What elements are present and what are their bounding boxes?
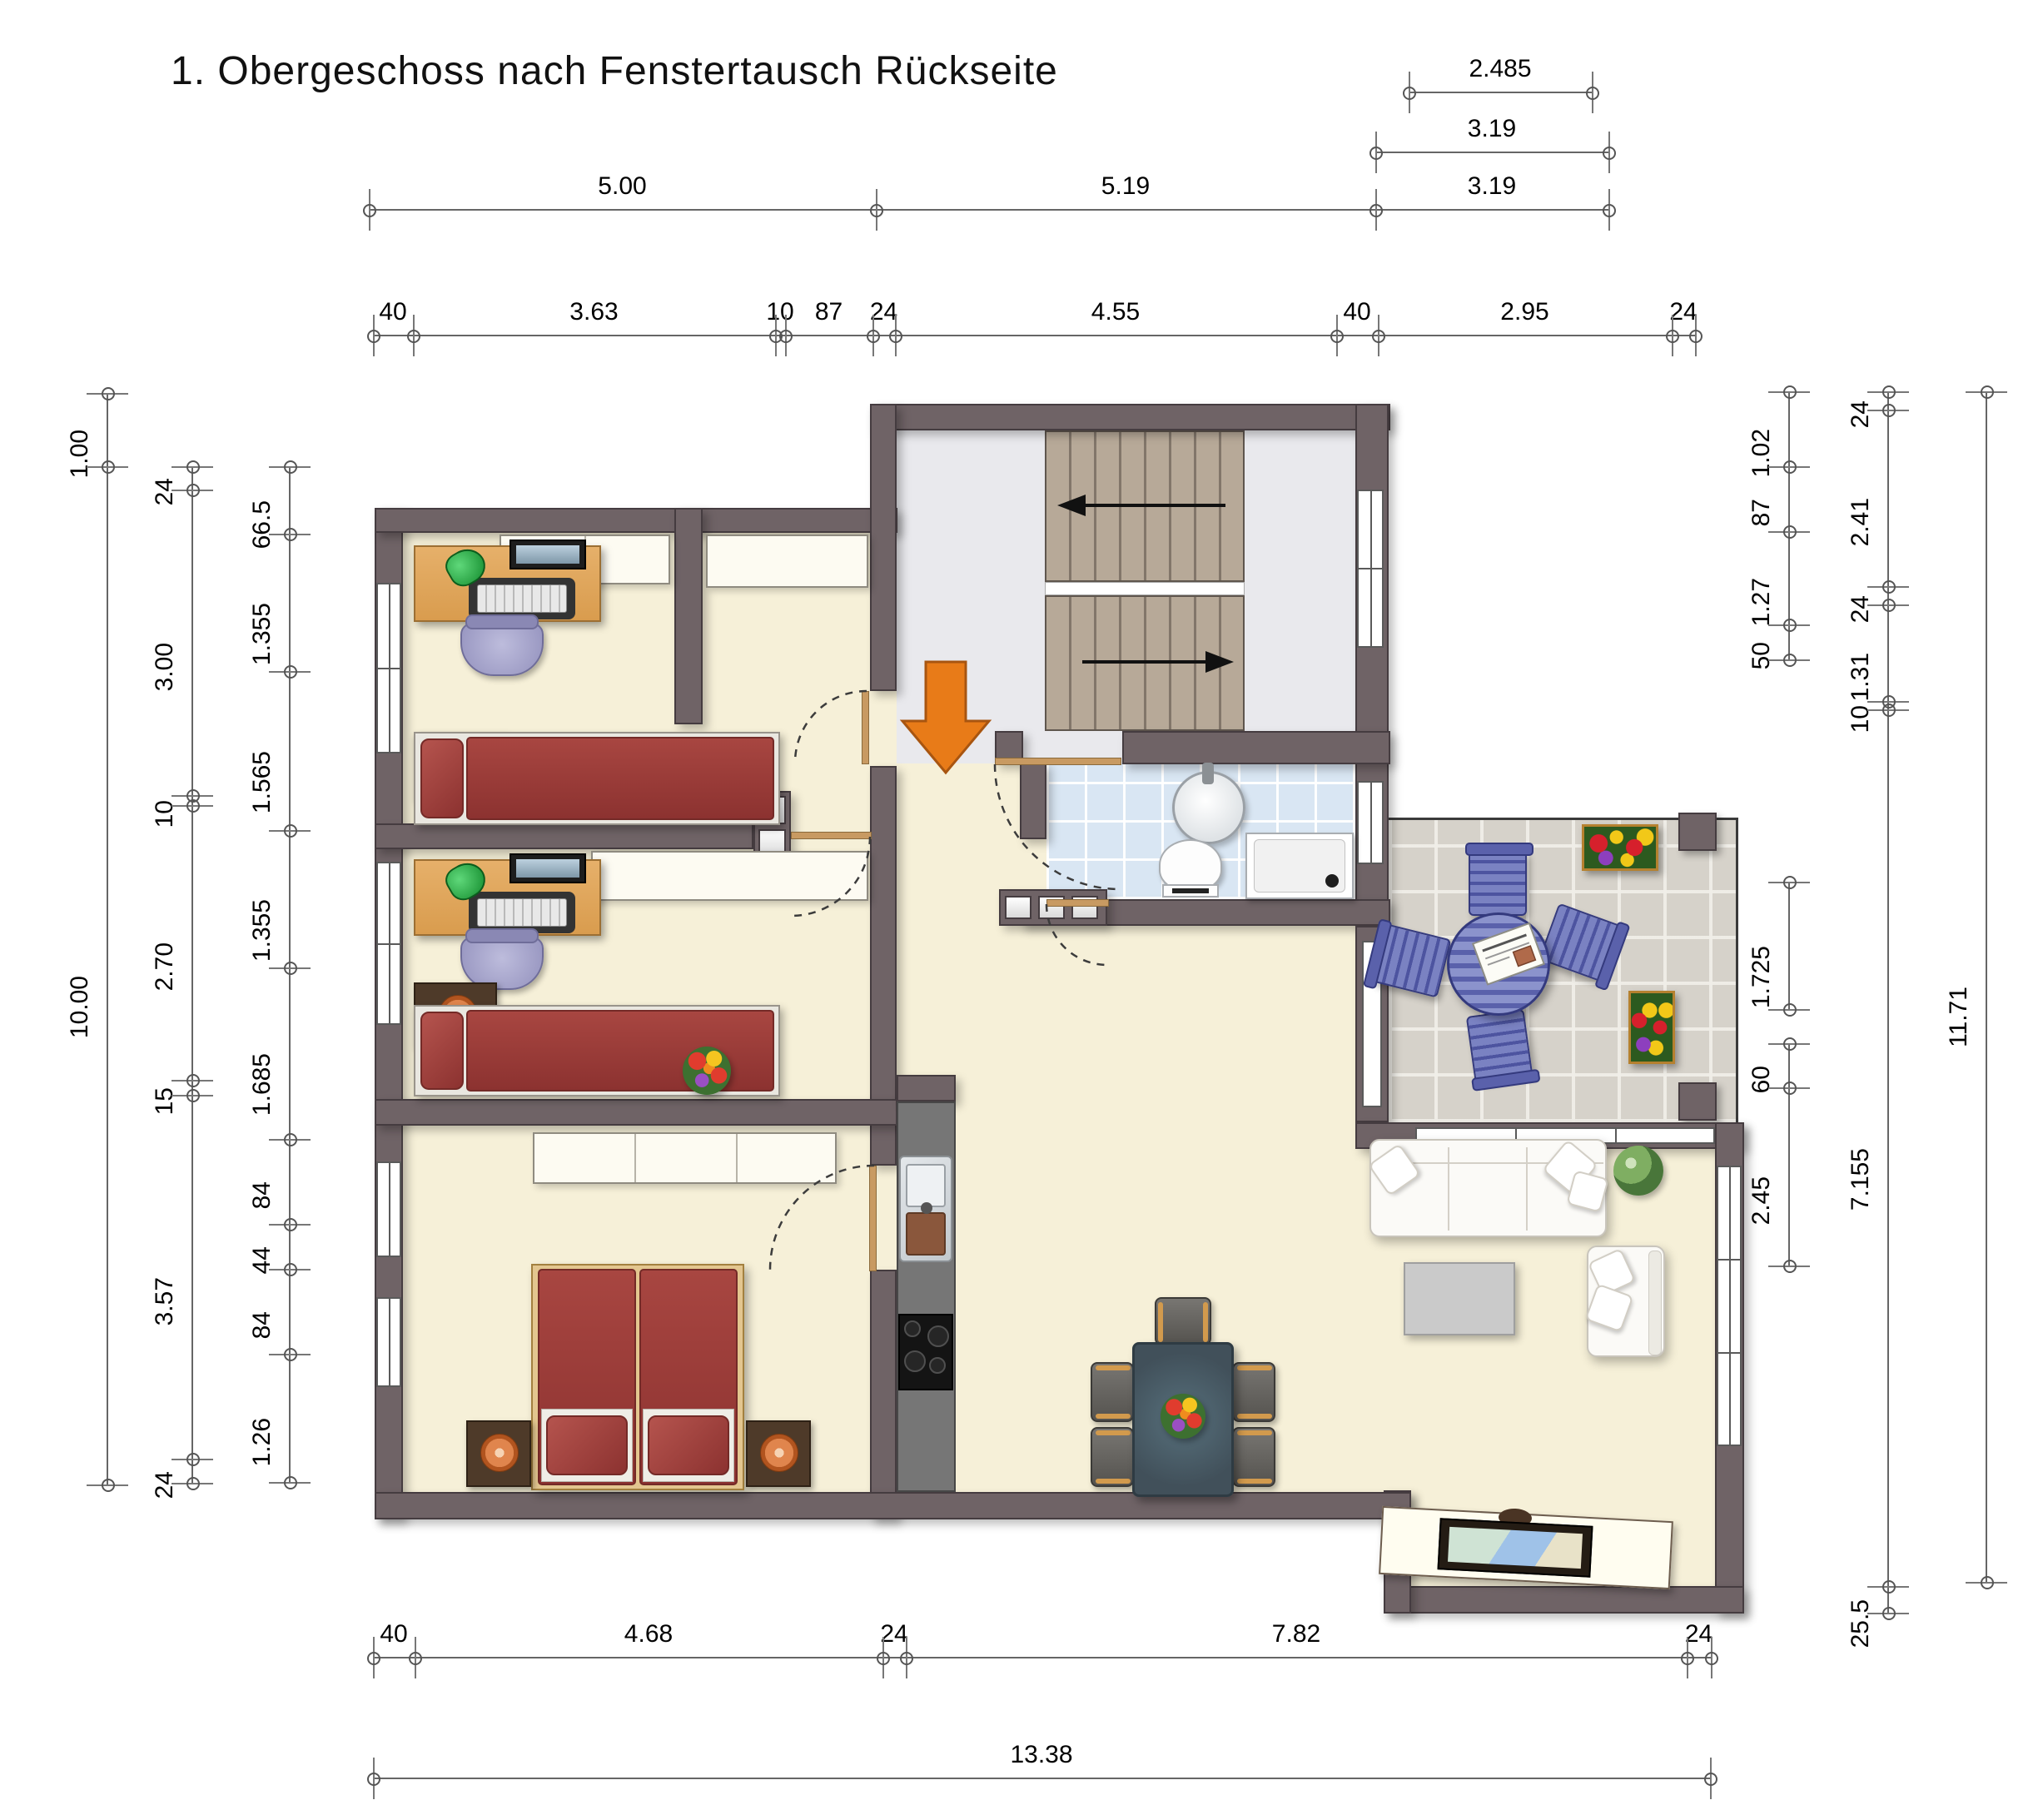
dim-label: 84 bbox=[248, 1181, 276, 1209]
dim-line bbox=[289, 967, 291, 1139]
dim-tick-icon bbox=[284, 1218, 297, 1231]
dim-tick-icon bbox=[367, 330, 380, 343]
dim-label: 1.355 bbox=[248, 899, 276, 962]
dim-line bbox=[785, 335, 872, 336]
dim-label: 87 bbox=[815, 298, 843, 326]
dim-line bbox=[289, 671, 291, 830]
dim-label: 40 bbox=[380, 1620, 407, 1648]
dim-tick-icon bbox=[1882, 385, 1896, 399]
dim-label: 7.82 bbox=[1272, 1620, 1320, 1648]
dim-tick-icon bbox=[1603, 204, 1616, 217]
dim-line bbox=[1378, 335, 1672, 336]
dim-tick-icon bbox=[1681, 1652, 1694, 1665]
dim-line bbox=[289, 1139, 291, 1224]
dim-tick-icon bbox=[284, 665, 297, 679]
dim-line bbox=[415, 1657, 882, 1658]
dim-tick-icon bbox=[1372, 330, 1385, 343]
dim-label: 66.5 bbox=[248, 500, 276, 549]
dim-label: 2.485 bbox=[1469, 55, 1531, 83]
dim-label: 15 bbox=[151, 1087, 179, 1115]
dim-tick-icon bbox=[284, 1133, 297, 1146]
dim-tick-icon bbox=[1882, 1580, 1896, 1594]
dim-tick-icon bbox=[186, 1074, 200, 1087]
dim-label: 10.00 bbox=[66, 976, 94, 1038]
dim-label: 1.355 bbox=[248, 603, 276, 665]
dim-tick-icon bbox=[1705, 1652, 1718, 1665]
dim-label: 1.00 bbox=[66, 430, 94, 478]
dim-line bbox=[191, 490, 193, 795]
floor-plan-canvas: 1. Obergeschoss nach Fenstertausch Rücks… bbox=[0, 0, 2043, 1820]
dim-label: 24 bbox=[880, 1620, 907, 1648]
dim-tick-icon bbox=[186, 799, 200, 813]
stair-direction-arrows bbox=[1057, 495, 1234, 673]
dim-tick-icon bbox=[186, 460, 200, 474]
dim-line bbox=[1788, 466, 1790, 531]
dim-label: 1.565 bbox=[248, 751, 276, 813]
dim-tick-icon bbox=[1783, 1003, 1797, 1017]
dim-label: 2.95 bbox=[1500, 298, 1548, 326]
dim-line bbox=[1375, 209, 1608, 211]
dim-tick-icon bbox=[877, 1652, 890, 1665]
dim-label: 3.19 bbox=[1468, 172, 1516, 201]
door-swing-icon bbox=[791, 837, 870, 916]
dim-line bbox=[1409, 92, 1592, 93]
dim-label: 50 bbox=[1747, 642, 1776, 669]
dim-tick-icon bbox=[1369, 147, 1383, 160]
dim-line bbox=[413, 335, 775, 336]
dim-tick-icon bbox=[284, 824, 297, 838]
entrance-arrow-icon bbox=[902, 662, 989, 773]
dim-tick-icon bbox=[102, 460, 115, 474]
dim-line bbox=[369, 209, 876, 211]
dim-tick-icon bbox=[284, 460, 297, 474]
dim-tick-icon bbox=[409, 1652, 422, 1665]
dim-tick-icon bbox=[1783, 619, 1797, 632]
dim-tick-icon bbox=[1689, 330, 1702, 343]
dim-tick-icon bbox=[1403, 87, 1416, 100]
dim-line bbox=[906, 1657, 1687, 1658]
dim-label: 24 bbox=[151, 478, 179, 505]
dim-label: 1.26 bbox=[248, 1418, 276, 1466]
dim-label: 5.00 bbox=[598, 172, 646, 201]
dim-tick-icon bbox=[284, 1263, 297, 1276]
dim-tick-icon bbox=[186, 1477, 200, 1490]
dim-label: 1.725 bbox=[1747, 946, 1776, 1008]
dim-line bbox=[289, 830, 291, 967]
dim-tick-icon bbox=[1783, 654, 1797, 667]
dim-line bbox=[1986, 391, 1987, 1582]
dim-line bbox=[289, 466, 291, 534]
dim-tick-icon bbox=[1666, 330, 1679, 343]
plan-overlay bbox=[0, 0, 2043, 1820]
dim-label: 3.57 bbox=[151, 1277, 179, 1325]
dim-line bbox=[107, 466, 108, 1484]
dim-label: 24 bbox=[1847, 400, 1875, 428]
dim-tick-icon bbox=[1783, 525, 1797, 539]
dim-label: 1.02 bbox=[1747, 429, 1776, 477]
dim-label: 11.71 bbox=[1945, 987, 1973, 1047]
dim-label: 3.19 bbox=[1468, 115, 1516, 143]
dim-tick-icon bbox=[1783, 876, 1797, 889]
dim-label: 5.19 bbox=[1101, 172, 1150, 201]
dim-line bbox=[191, 1095, 193, 1459]
dim-tick-icon bbox=[1330, 330, 1344, 343]
dim-line bbox=[107, 393, 108, 466]
dim-label: 10 bbox=[766, 298, 793, 326]
dim-label: 87 bbox=[1747, 499, 1776, 526]
dim-tick-icon bbox=[1783, 385, 1797, 399]
dim-label: 1.685 bbox=[248, 1053, 276, 1116]
dim-tick-icon bbox=[407, 330, 420, 343]
dim-label: 24 bbox=[151, 1471, 179, 1499]
dim-line bbox=[895, 335, 1336, 336]
newspaper-icon bbox=[1473, 923, 1543, 984]
dim-line bbox=[289, 534, 291, 671]
dim-label: 3.63 bbox=[569, 298, 618, 326]
dim-tick-icon bbox=[363, 204, 376, 217]
dim-tick-icon bbox=[1783, 460, 1797, 474]
dim-tick-icon bbox=[1882, 580, 1896, 594]
dim-tick-icon bbox=[102, 387, 115, 400]
dim-tick-icon bbox=[1783, 1260, 1797, 1273]
dim-label: 40 bbox=[379, 298, 406, 326]
dim-label: 4.55 bbox=[1091, 298, 1140, 326]
dim-tick-icon bbox=[367, 1773, 380, 1786]
dim-label: 40 bbox=[1343, 298, 1370, 326]
dim-tick-icon bbox=[900, 1652, 913, 1665]
door-swing-icon bbox=[995, 764, 1120, 889]
dim-label: 13.38 bbox=[1010, 1741, 1072, 1769]
dim-label: 2.45 bbox=[1747, 1176, 1776, 1225]
dim-line bbox=[1788, 391, 1790, 466]
dim-line bbox=[1887, 709, 1889, 1586]
dim-tick-icon bbox=[1704, 1773, 1717, 1786]
dim-line bbox=[876, 209, 1375, 211]
dim-label: 24 bbox=[1669, 298, 1697, 326]
dim-line bbox=[1788, 531, 1790, 624]
dim-tick-icon bbox=[1369, 204, 1383, 217]
dim-tick-icon bbox=[1882, 404, 1896, 417]
dim-label: 3.00 bbox=[151, 643, 179, 691]
dim-line bbox=[1375, 152, 1608, 153]
dim-tick-icon bbox=[284, 1476, 297, 1489]
dim-label: 2.41 bbox=[1847, 498, 1875, 546]
dim-tick-icon bbox=[284, 962, 297, 975]
dim-label: 4.68 bbox=[624, 1620, 673, 1648]
dim-label: 1.27 bbox=[1747, 578, 1776, 626]
dim-line bbox=[1887, 604, 1889, 701]
dim-tick-icon bbox=[1586, 87, 1599, 100]
dim-tick-icon bbox=[1603, 147, 1616, 160]
dim-tick-icon bbox=[1882, 599, 1896, 612]
dim-label: 84 bbox=[248, 1311, 276, 1339]
dim-label: 24 bbox=[1685, 1620, 1712, 1648]
dim-tick-icon bbox=[284, 528, 297, 541]
dim-tick-icon bbox=[186, 1089, 200, 1102]
dim-tick-icon bbox=[1981, 385, 1994, 399]
dim-tick-icon bbox=[1882, 704, 1896, 717]
dim-line bbox=[373, 1778, 1710, 1779]
dim-tick-icon bbox=[889, 330, 902, 343]
dim-tick-icon bbox=[870, 204, 883, 217]
dim-tick-icon bbox=[284, 1348, 297, 1361]
dim-label: 2.70 bbox=[151, 942, 179, 991]
dim-label: 1.31 bbox=[1847, 653, 1875, 701]
dim-tick-icon bbox=[1783, 1037, 1797, 1051]
dim-line bbox=[191, 805, 193, 1080]
dim-tick-icon bbox=[1783, 1082, 1797, 1095]
dim-label: 25.5 bbox=[1847, 1599, 1875, 1648]
dim-line bbox=[1788, 882, 1790, 1009]
door-swing-icon bbox=[1046, 904, 1107, 965]
dim-line bbox=[1887, 410, 1889, 586]
dim-tick-icon bbox=[1981, 1576, 1994, 1589]
dim-tick-icon bbox=[186, 484, 200, 497]
dim-line bbox=[1788, 1087, 1790, 1266]
dim-label: 7.155 bbox=[1847, 1148, 1875, 1211]
dim-tick-icon bbox=[186, 1453, 200, 1466]
dim-label: 24 bbox=[1847, 595, 1875, 623]
dim-line bbox=[289, 1354, 291, 1482]
dim-line bbox=[289, 1269, 291, 1354]
dim-tick-icon bbox=[102, 1479, 115, 1492]
dim-tick-icon bbox=[867, 330, 880, 343]
door-swing-icon bbox=[795, 691, 867, 763]
dim-label: 10 bbox=[151, 800, 179, 828]
door-swing-icon bbox=[770, 1166, 874, 1270]
dim-tick-icon bbox=[367, 1652, 380, 1665]
dim-tick-icon bbox=[779, 330, 793, 343]
dim-tick-icon bbox=[1882, 1607, 1896, 1620]
